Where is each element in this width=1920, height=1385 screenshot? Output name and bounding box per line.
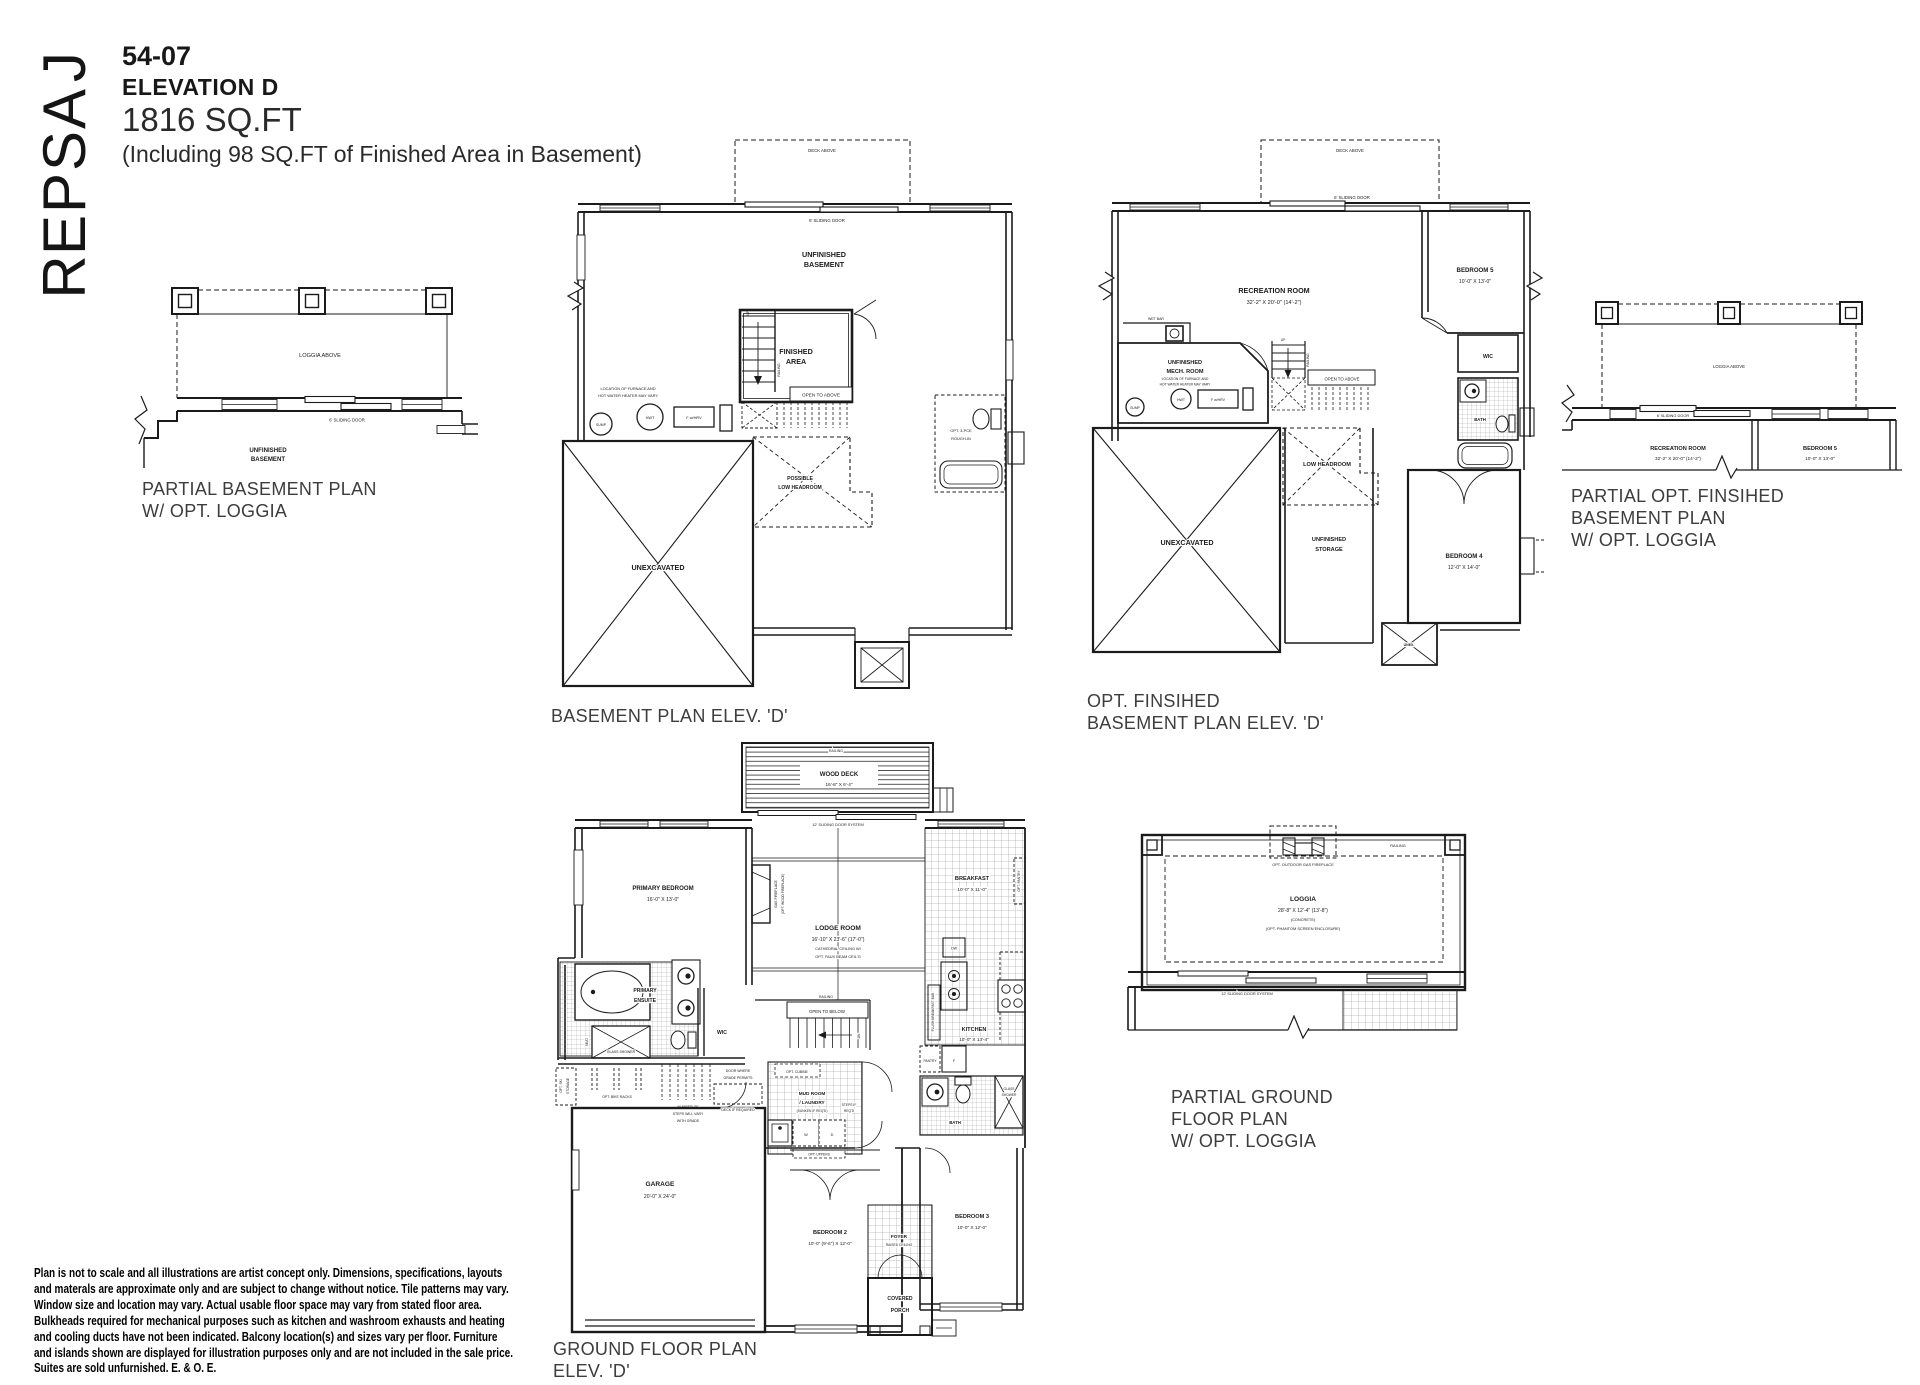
p2-roughin-label-1: OPT. 3-PCE <box>950 428 972 433</box>
plan-number: 54-07 <box>122 42 642 71</box>
plan-opt-finished-basement: DECK ABOVE 6' SLIDING DOOR RECREATION RO… <box>1080 125 1570 725</box>
p6-caption-line3: W/ OPT. LOGGIA <box>1171 1130 1333 1152</box>
p5-garage-label: GARAGE <box>646 1181 676 1188</box>
p2-possible-low-headroom-2: LOW HEADROOM <box>778 485 822 491</box>
p4-caption-line1: PARTIAL OPT. FINSIHED <box>1571 485 1784 507</box>
p3-open-to-above-label: OPEN TO ABOVE <box>1325 377 1360 382</box>
disclaimer-line: Bulkheads required for mechanical purpos… <box>34 1314 513 1330</box>
p4-rec-room-label: RECREATION ROOM <box>1650 446 1706 452</box>
p5-bedroom2-label: BEDROOM 2 <box>813 1230 847 1236</box>
p1-unfinished-label-1: UNFINISHED <box>249 447 287 454</box>
p5-ensuite-label-2: ENSUITE <box>634 998 657 1004</box>
p6-caption: PARTIAL GROUND FLOOR PLAN W/ OPT. LOGGIA <box>1171 1086 1333 1152</box>
p5-ski-label-2: STORAGE <box>566 1077 570 1094</box>
plan-ground-floor: RAILING WOOD DECK 16'-8" X 6'-4" 12' SLI… <box>545 735 1065 1350</box>
p2-deck-above-label: DECK ABOVE <box>808 148 836 153</box>
p6-loggia-label: LOGGIA <box>1290 896 1316 903</box>
p5-caption: GROUND FLOOR PLAN ELEV. 'D' <box>553 1338 757 1382</box>
p2-furnace-note-1: LOCATION OF FURNACE AND <box>600 386 655 391</box>
p5-dryer-label: D <box>831 1132 834 1137</box>
p5-stair-railing-label: RAILING <box>819 995 833 999</box>
p4-caption-line2: BASEMENT PLAN <box>1571 507 1784 529</box>
p6-caption-line1: PARTIAL GROUND <box>1171 1086 1333 1108</box>
p1-caption-line1: PARTIAL BASEMENT PLAN <box>142 478 377 500</box>
p2-sliding-door-label: 6' SLIDING DOOR <box>809 218 845 223</box>
plan-partial-opt-basement: LOGGIA ABOVE 6' SLIDING DOOR RECREATION … <box>1558 288 1913 488</box>
disclaimer-line: Plan is not to scale and all illustratio… <box>34 1266 513 1282</box>
p5-flush-bar-label: FLUSH BREAKFAST BAR <box>931 992 935 1031</box>
disclaimer-text: Plan is not to scale and all illustratio… <box>34 1266 513 1377</box>
p3-rec-room-dim: 32'-2" X 20'-0" (14'-2") <box>1247 300 1302 306</box>
p5-cubbie-label: OPT. CUBBIE <box>786 1070 808 1074</box>
p2-furnace-note-2: HOT WATER HEATER MAY VARY <box>598 393 658 398</box>
p5-bedroom3-dim: 10'-0" X 12'-0" <box>957 1225 987 1230</box>
p5-caption-line2: ELEV. 'D' <box>553 1360 757 1382</box>
p5-caption-line1: GROUND FLOOR PLAN <box>553 1338 757 1360</box>
p4-rec-room-dim: 32'-2" X 20'-0" (14'-2") <box>1655 456 1701 461</box>
p5-ensuite-label-1: PRIMARY <box>633 988 657 994</box>
p3-unex-label: UNEX. <box>1404 643 1415 647</box>
p6-screen-note: (OPT. PHANTOM SCREEN ENCLOSURE) <box>1266 926 1341 931</box>
p2-unexcavated-label: UNEXCAVATED <box>631 563 684 572</box>
p3-furnace-note-1: LOCATION OF FURNACE AND <box>1162 377 1209 381</box>
p3-sump-label: SUMP <box>1130 406 1140 410</box>
p3-wic-label: WIC <box>1483 354 1493 360</box>
p5-deck-railing-label: RAILING <box>829 749 843 753</box>
p5-glass-shower-label: GLASS SHOWER <box>607 1050 636 1054</box>
p5-door-note-1: DOOR WHERE <box>726 1069 751 1073</box>
p5-washer-label: W <box>804 1132 808 1137</box>
p3-bedroom5-label: BEDROOM 5 <box>1457 267 1495 274</box>
disclaimer-line: Suites are sold unfurnished. E. & O. E. <box>34 1361 513 1377</box>
model-name-vertical: JASPER <box>22 46 106 298</box>
p3-bath-label: BATH <box>1474 417 1486 422</box>
p5-steps-req-label-1: STEPS IF <box>842 1103 857 1107</box>
p5-porch-label-2: PORCH <box>891 1308 910 1314</box>
p5-porch-label-1: COVERED <box>887 1296 913 1302</box>
p5-steps-req-label-2: REQ'D <box>844 1109 855 1113</box>
disclaimer-line: and islands shown are displayed for illu… <box>34 1346 513 1362</box>
p3-mech-label-1: UNFINISHED <box>1168 360 1202 366</box>
p5-geometry <box>556 743 1025 1336</box>
plan-partial-ground: RAILING OPT. OUTDOOR GAS FIREPLACE LOGGI… <box>1115 820 1515 1065</box>
p5-kitchen-label: KITCHEN <box>962 1027 987 1033</box>
p3-rec-room-label: RECREATION ROOM <box>1238 286 1309 295</box>
p5-lodge-room-label: LODGE ROOM <box>815 925 861 932</box>
p5-bedroom2-dim: 10'-0" (9'-6") X 12'-0" <box>808 1241 852 1246</box>
p1-caption-line2: W/ OPT. LOGGIA <box>142 500 377 522</box>
p5-garage-dim: 20'-0" X 24'-0" <box>644 1194 676 1200</box>
p3-fhrv-label: F w/HRV <box>1211 398 1226 402</box>
p5-opt-uppers-label: OPT. UPPERS <box>808 1153 831 1157</box>
p3-mech-label-2: MECH. ROOM <box>1167 369 1204 375</box>
p5-fireplace-label-1: GAS FIREPLACE <box>774 879 778 907</box>
p4-bedroom5-dim: 10'-0" X 13'-0" <box>1805 456 1835 461</box>
disclaimer-line: and cooling ducts have not been indicate… <box>34 1330 513 1346</box>
p2-geometry <box>563 140 1024 688</box>
p4-bedroom5-label: BEDROOM 5 <box>1803 446 1837 452</box>
p3-caption-line2: BASEMENT PLAN ELEV. 'D' <box>1087 712 1324 734</box>
p2-caption: BASEMENT PLAN ELEV. 'D' <box>551 705 788 727</box>
p3-deck-above-label: DECK ABOVE <box>1336 148 1364 153</box>
p5-dw-label: DW <box>951 947 958 951</box>
p5-bike-racks-label: OPT. BIKE RACKS <box>602 1095 632 1099</box>
p6-fireplace-label: OPT. OUTDOOR GAS FIREPLACE <box>1272 862 1334 867</box>
p1-loggia-above-label: LOGGIA ABOVE <box>299 353 341 359</box>
p5-door-note-2: GRADE PERMITS <box>724 1076 754 1080</box>
p5-seat-label: SEAT <box>585 1038 589 1046</box>
p5-kitchen-dim: 10'-0" X 13'-4" <box>959 1037 989 1042</box>
p5-breakfast-label: BREAKFAST <box>955 876 990 882</box>
p2-sump-label: SUMP <box>596 423 607 427</box>
p1-caption: PARTIAL BASEMENT PLAN W/ OPT. LOGGIA <box>142 478 377 522</box>
p5-steps-note-2: STEPS WILL VARY <box>673 1112 704 1116</box>
p6-caption-line2: FLOOR PLAN <box>1171 1108 1333 1130</box>
p1-sliding-door-label: 6' SLIDING DOOR <box>329 418 365 423</box>
p2-finished-label-2: AREA <box>786 357 806 366</box>
p3-up-label: UP <box>1281 338 1286 342</box>
p1-unfinished-label-2: BASEMENT <box>251 456 285 463</box>
p5-steps-note-1: NUMBER OF <box>678 1105 699 1109</box>
p5-fireplace-label-2: (OPT. WOOD FIREPLACE) <box>781 874 785 914</box>
p5-glass-shower2-label-2: SHOWER <box>1002 1093 1017 1097</box>
p3-railing-label: RAILING <box>1306 353 1310 367</box>
plan-partial-basement: LOGGIA ABOVE 6' SLIDING DOOR UNFINISHED … <box>125 270 485 475</box>
p3-low-headroom-label: LOW HEADROOM <box>1303 462 1351 468</box>
p5-bath-label: BATH <box>949 1120 961 1125</box>
p2-unfinished-label-1: UNFINISHED <box>802 250 846 259</box>
p6-concrete-note: (CONCRETE) <box>1291 917 1316 922</box>
plan-basement: DECK ABOVE 6' SLIDING DOOR UNFINISHED BA… <box>545 132 1035 712</box>
p3-caption: OPT. FINSIHED BASEMENT PLAN ELEV. 'D' <box>1087 690 1324 734</box>
p3-bedroom4-dim: 12'-0" X 14'-0" <box>1448 565 1480 571</box>
p5-mud-room-label-2: / LAUNDRY <box>799 1100 825 1105</box>
p2-fhrv-label: F w/HRV <box>686 415 702 420</box>
p3-wet-bar-label: WET BAR <box>1148 317 1164 321</box>
p5-mud-room-label-3: (SUNKEN IF REQ'D) <box>797 1109 828 1113</box>
disclaimer-line: Window size and location may vary. Actua… <box>34 1298 513 1314</box>
p3-unexcavated-label: UNEXCAVATED <box>1160 538 1213 547</box>
p3-caption-line1: OPT. FINSIHED <box>1087 690 1324 712</box>
p3-furnace-note-2: HOT WATER HEATER MAY VARY <box>1160 383 1212 387</box>
p5-lodge-note-2: OPT. FAUX BEAM CEIL'G <box>815 954 861 959</box>
p5-wic-label: WIC <box>717 1030 727 1036</box>
p3-bedroom5-dim: 10'-0" X 13'-0" <box>1459 279 1491 285</box>
p5-slider12-label: 12' SLIDING DOOR SYSTEM <box>812 822 864 827</box>
p5-pantry-label: PANTRY <box>923 1059 937 1063</box>
p2-roughin-label-2: ROUGH-IN <box>951 436 971 441</box>
p4-caption: PARTIAL OPT. FINSIHED BASEMENT PLAN W/ O… <box>1571 485 1784 551</box>
p2-open-to-above-label: OPEN TO ABOVE <box>802 393 840 398</box>
p5-steps-note-3: WITH GRADE <box>677 1119 700 1123</box>
p2-finished-label-1: FINISHED <box>779 347 813 356</box>
p5-mud-room-label-1: MUD ROOM <box>799 1091 826 1096</box>
p4-loggia-above-label: LOGGIA ABOVE <box>1713 364 1745 369</box>
p1-geometry <box>135 288 478 468</box>
p5-foyer-note: RAISED CEILING <box>886 1243 913 1247</box>
p4-caption-line3: W/ OPT. LOGGIA <box>1571 529 1784 551</box>
p5-wood-deck-dim: 16'-8" X 6'-4" <box>825 782 852 787</box>
p5-lodge-room-dim: 16'-10" X 23'-6" (17'-0") <box>812 937 865 943</box>
floorplan-sheet: JASPER 54-07 ELEVATION D 1816 SQ.FT (Inc… <box>0 0 1920 1385</box>
p4-geometry <box>1562 302 1902 478</box>
p2-hwt-label: HWT <box>646 415 655 420</box>
p3-storage-label-1: UNFINISHED <box>1312 537 1346 543</box>
p6-railing-label: RAILING <box>1390 843 1406 848</box>
p2-possible-low-headroom-1: POSSIBLE <box>787 476 813 482</box>
p5-opt-pantry-label: OPT. PANTRY <box>1017 870 1021 892</box>
p5-dn-label: DN <box>857 1033 861 1038</box>
p3-sliding-door-label: 6' SLIDING DOOR <box>1334 195 1370 200</box>
p3-hwt-label: HWT <box>1177 398 1186 402</box>
p5-bedroom3-label: BEDROOM 3 <box>955 1214 989 1220</box>
p5-foyer-label: FOYER <box>891 1234 908 1239</box>
p6-slider12-label: 12' SLIDING DOOR SYSTEM <box>1221 991 1273 996</box>
p2-caption-line1: BASEMENT PLAN ELEV. 'D' <box>551 705 788 727</box>
elevation-label: ELEVATION D <box>122 75 642 100</box>
p3-storage-label-2: STORAGE <box>1315 547 1343 553</box>
p5-ski-label-1: OPT. SKI <box>559 1079 563 1093</box>
p5-lodge-note-1: CATHEDRAL CEILING W/ <box>815 946 862 951</box>
p5-primary-bedroom-dim: 16'-0" X 13'-0" <box>647 897 679 903</box>
p5-primary-bedroom-label: PRIMARY BEDROOM <box>632 885 693 892</box>
p5-fridge-label: F <box>953 1058 956 1063</box>
disclaimer-line: and materals are approximate only and ar… <box>34 1282 513 1298</box>
p2-up-label: UP <box>746 310 750 316</box>
p6-geometry <box>1128 826 1465 1038</box>
p3-geometry <box>1093 140 1544 665</box>
p2-unfinished-label-2: BASEMENT <box>804 260 845 269</box>
p3-bedroom4-label: BEDROOM 4 <box>1446 553 1484 560</box>
p5-breakfast-dim: 10'-0" X 11'-0" <box>957 887 987 892</box>
p5-open-to-below-label: OPEN TO BELOW <box>809 1009 846 1014</box>
p4-sliding-door-label: 6' SLIDING DOOR <box>1657 413 1689 418</box>
p6-loggia-dim: 28'-8" X 12'-4" (13'-8") <box>1278 908 1328 914</box>
p5-deck-if-required-label: DECK IF REQUIRED <box>721 1108 755 1112</box>
p5-wood-deck-label: WOOD DECK <box>820 771 859 778</box>
p5-glass-shower2-label-1: GLASS <box>1004 1087 1016 1091</box>
p2-railing-label: RAILING <box>777 363 781 377</box>
